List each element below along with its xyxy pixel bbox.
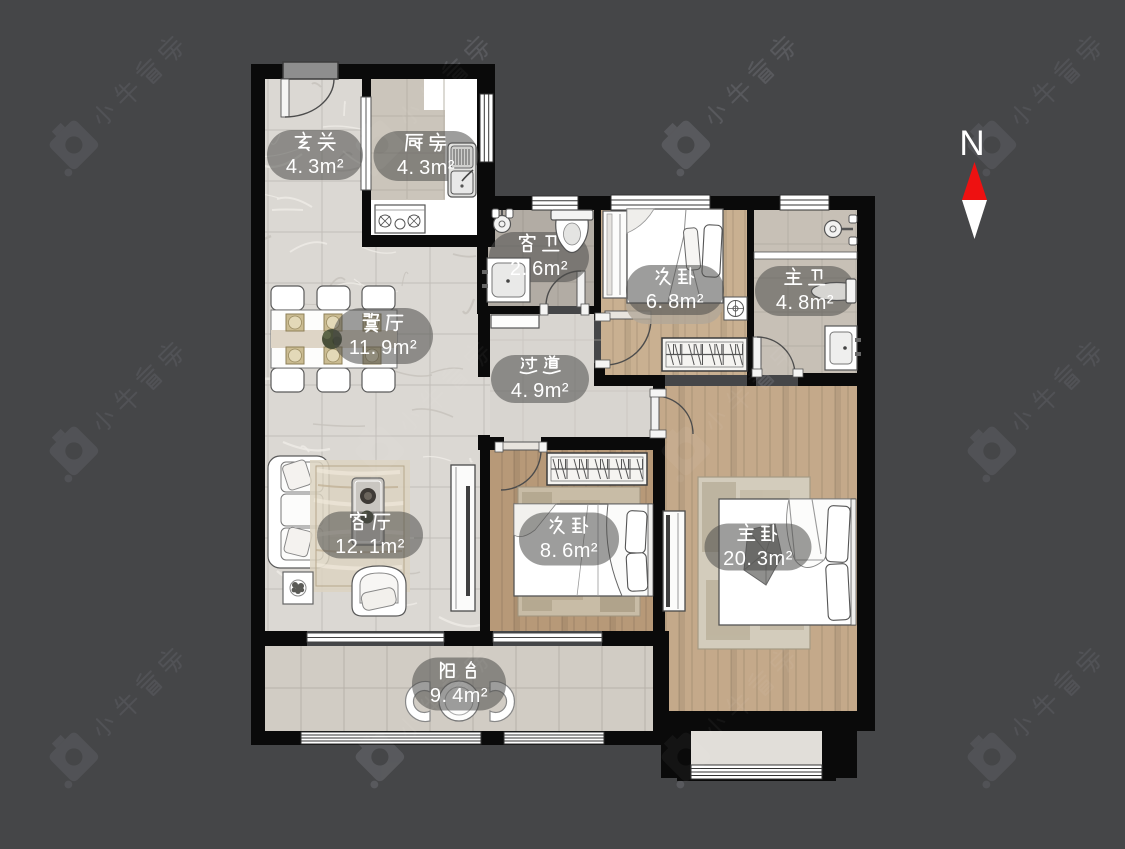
svg-text:4. 8m²: 4. 8m² [776,292,834,314]
svg-text:4. 9m²: 4. 9m² [511,380,569,402]
svg-text:20. 3m²: 20. 3m² [723,548,793,570]
svg-text:9. 4m²: 9. 4m² [430,685,488,707]
svg-text:6. 8m²: 6. 8m² [646,291,704,313]
svg-text:8. 6m²: 8. 6m² [540,540,598,562]
svg-text:11. 9m²: 11. 9m² [349,337,417,359]
svg-text:2. 6m²: 2. 6m² [510,258,568,280]
svg-text:N: N [959,124,984,163]
svg-text:4. 3m²: 4. 3m² [286,156,344,178]
svg-text:12. 1m²: 12. 1m² [335,536,405,558]
svg-text:4. 3m²: 4. 3m² [397,157,455,179]
